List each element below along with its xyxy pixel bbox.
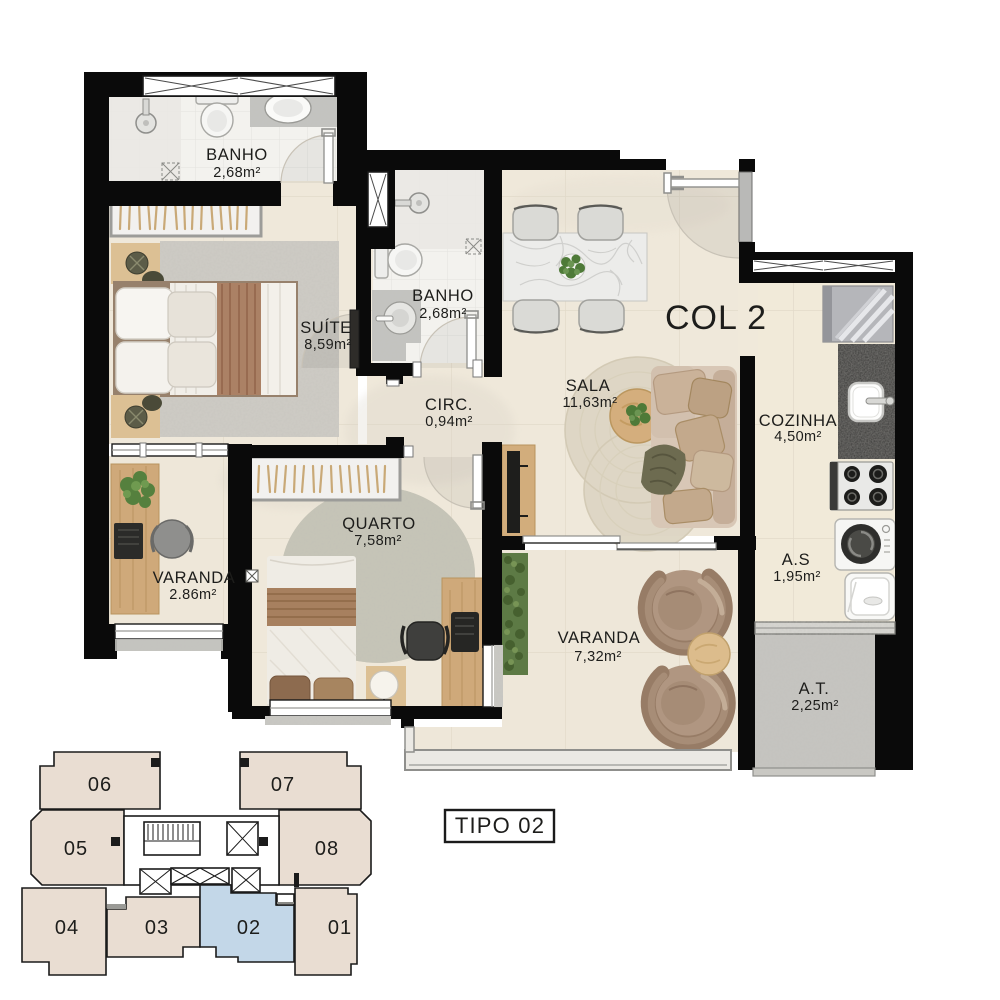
svg-text:BANHO: BANHO xyxy=(206,146,268,164)
svg-text:2,25m²: 2,25m² xyxy=(791,698,839,714)
svg-text:COZINHA: COZINHA xyxy=(759,412,837,430)
svg-text:2.86m²: 2.86m² xyxy=(169,587,217,603)
svg-text:2,68m²: 2,68m² xyxy=(419,306,467,322)
svg-text:8,59m²: 8,59m² xyxy=(304,337,352,353)
svg-text:04: 04 xyxy=(55,917,79,939)
svg-text:01: 01 xyxy=(328,917,352,939)
svg-text:4,50m²: 4,50m² xyxy=(774,429,822,445)
svg-text:2,68m²: 2,68m² xyxy=(213,165,261,181)
svg-text:07: 07 xyxy=(271,774,295,796)
svg-text:SALA: SALA xyxy=(566,377,611,395)
svg-text:VARANDA: VARANDA xyxy=(153,569,236,587)
svg-text:BANHO: BANHO xyxy=(412,287,474,305)
svg-text:06: 06 xyxy=(88,774,112,796)
svg-text:1,95m²: 1,95m² xyxy=(773,569,821,585)
svg-text:QUARTO: QUARTO xyxy=(342,515,416,533)
svg-text:A.S: A.S xyxy=(782,551,810,569)
svg-text:A.T.: A.T. xyxy=(799,680,830,698)
svg-text:7,32m²: 7,32m² xyxy=(574,649,622,665)
svg-text:CIRC.: CIRC. xyxy=(425,396,473,414)
svg-text:VARANDA: VARANDA xyxy=(558,629,641,647)
svg-text:02: 02 xyxy=(237,917,261,939)
svg-text:SUÍTE: SUÍTE xyxy=(300,318,352,337)
svg-text:08: 08 xyxy=(315,838,339,860)
svg-text:05: 05 xyxy=(64,838,88,860)
svg-text:7,58m²: 7,58m² xyxy=(354,533,402,549)
svg-text:COL 2: COL 2 xyxy=(665,299,767,337)
svg-text:TIPO 02: TIPO 02 xyxy=(455,813,545,838)
svg-text:03: 03 xyxy=(145,917,169,939)
svg-text:11,63m²: 11,63m² xyxy=(563,395,618,411)
svg-text:0,94m²: 0,94m² xyxy=(425,414,473,430)
